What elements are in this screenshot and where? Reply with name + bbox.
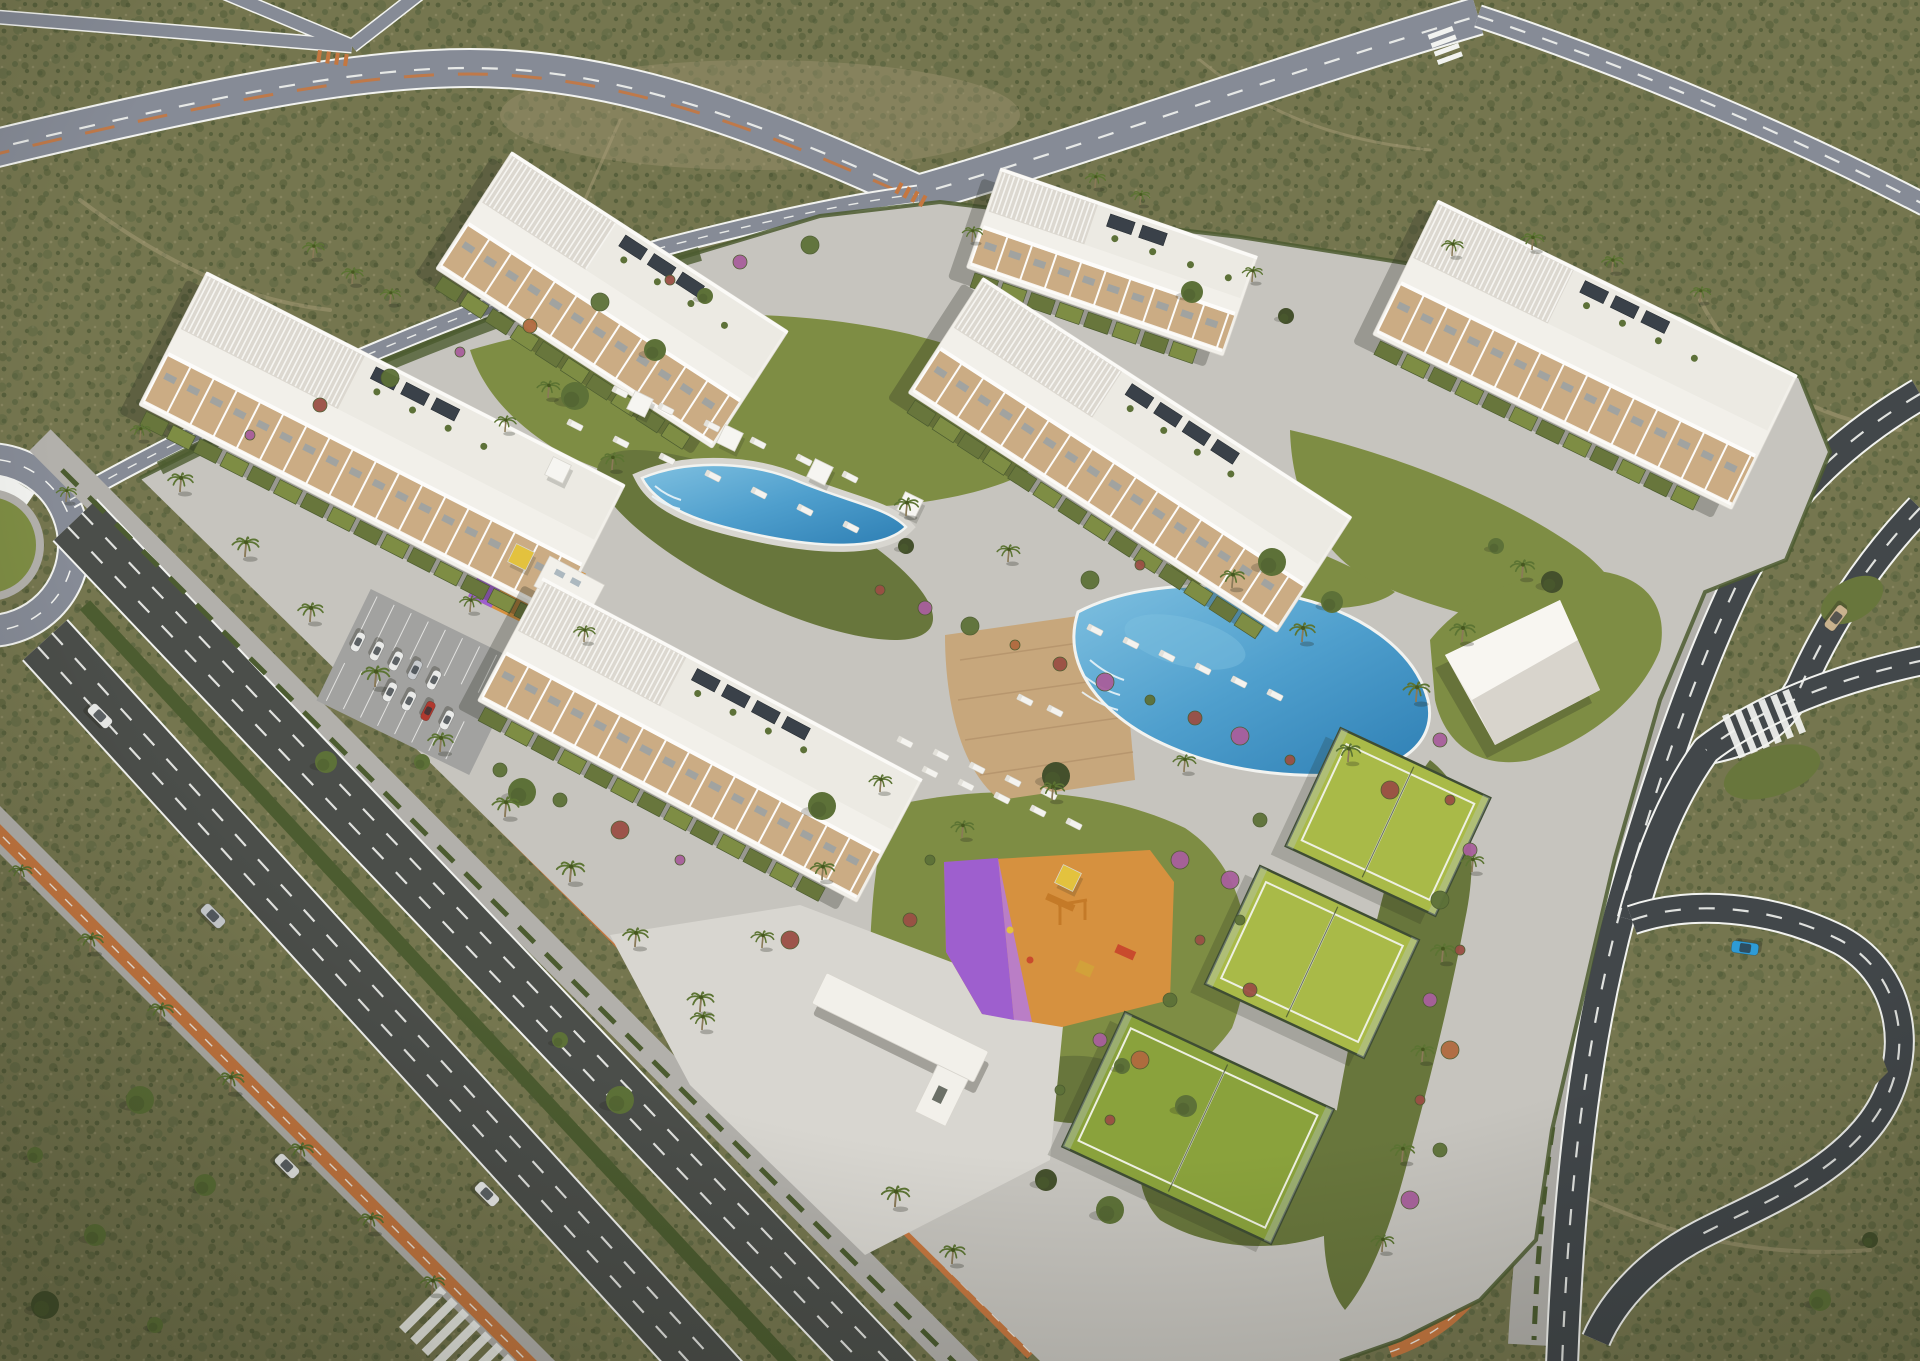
vignette-overlay — [0, 0, 1920, 1361]
aerial-render-page — [0, 0, 1920, 1361]
aerial-render — [0, 0, 1920, 1361]
